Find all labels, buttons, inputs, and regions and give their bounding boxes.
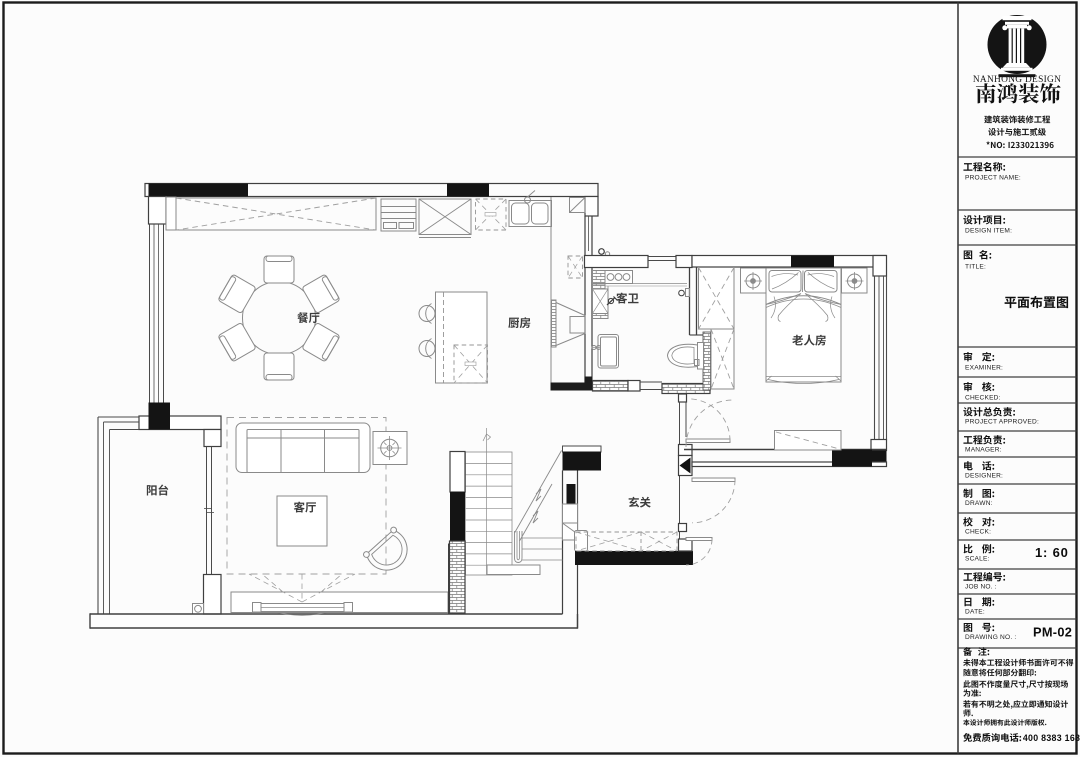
- svg-text:DESIGNER:: DESIGNER:: [965, 473, 1003, 480]
- svg-text:PROJECT APPROVED:: PROJECT APPROVED:: [965, 419, 1039, 426]
- svg-text:PM-02: PM-02: [1033, 625, 1072, 640]
- svg-text:JOB NO. :: JOB NO. :: [965, 584, 997, 591]
- svg-text:DATE:: DATE:: [965, 609, 985, 616]
- svg-text:CHECKED:: CHECKED:: [965, 395, 1001, 402]
- svg-text:PROJECT NAME:: PROJECT NAME:: [965, 175, 1021, 182]
- svg-text:EXAMINER:: EXAMINER:: [965, 365, 1003, 372]
- svg-text:CHECK:: CHECK:: [965, 529, 991, 536]
- svg-text:400 8383 168: 400 8383 168: [1023, 733, 1080, 743]
- svg-text:DRAWN:: DRAWN:: [965, 500, 993, 507]
- svg-text:DESIGN ITEM:: DESIGN ITEM:: [965, 228, 1012, 235]
- svg-text:TITLE:: TITLE:: [965, 264, 986, 271]
- svg-text:DRAWING NO. :: DRAWING NO. :: [965, 634, 1016, 641]
- svg-text:MANAGER:: MANAGER:: [965, 447, 1002, 454]
- svg-text:1: 60: 1: 60: [1035, 545, 1069, 560]
- svg-text:SCALE:: SCALE:: [965, 556, 990, 563]
